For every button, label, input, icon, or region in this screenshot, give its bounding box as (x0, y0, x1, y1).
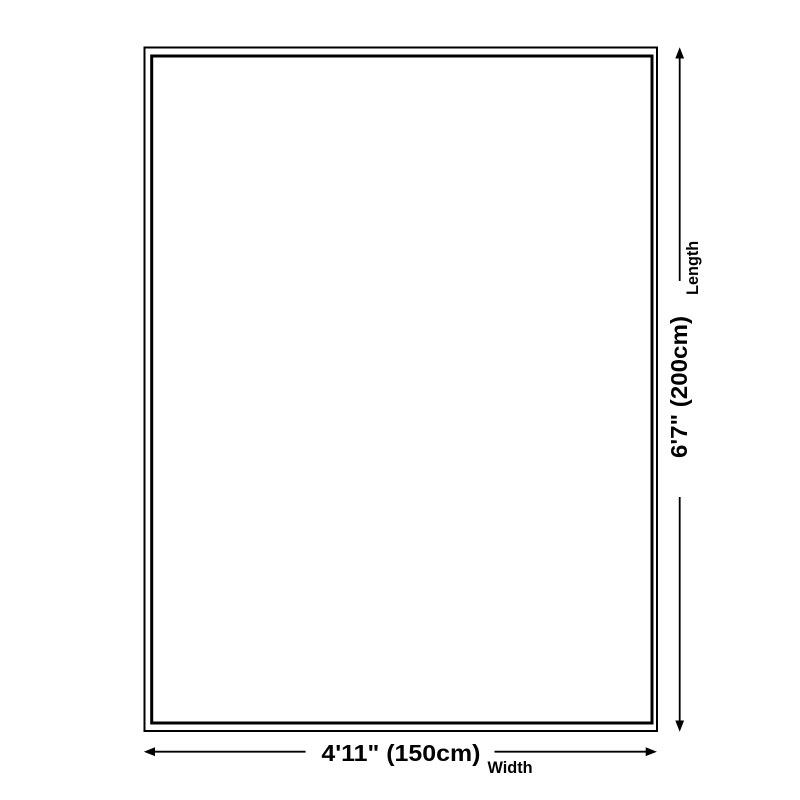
svg-text:Width: Width (488, 759, 533, 777)
svg-text:6'7" (200cm): 6'7" (200cm) (666, 316, 692, 458)
svg-text:4'11" (150cm): 4'11" (150cm) (321, 740, 480, 766)
svg-text:Length: Length (684, 241, 702, 295)
